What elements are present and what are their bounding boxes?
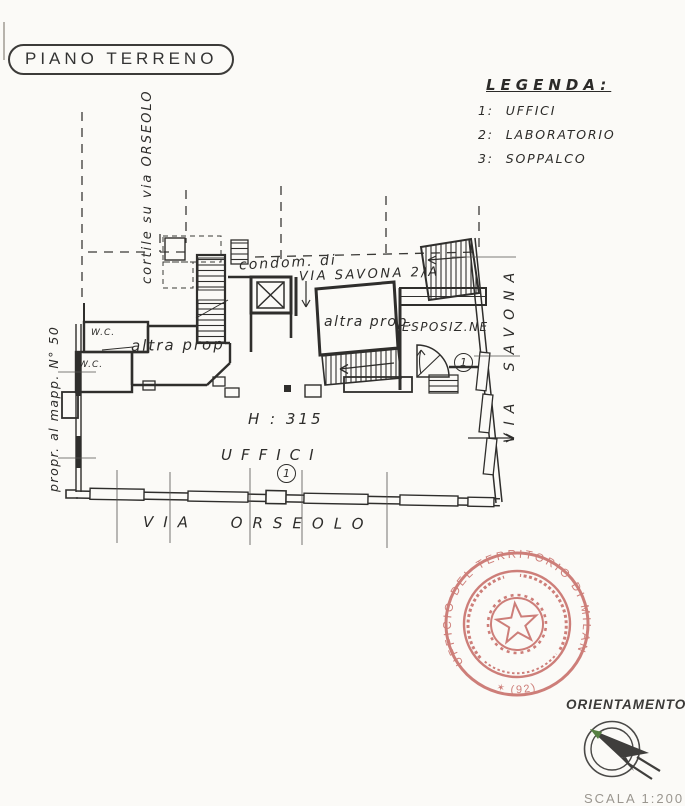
compass-icon (585, 722, 661, 780)
offices-number-badge: 1 (277, 464, 296, 483)
legend-item-label: LABORATORIO (506, 127, 616, 142)
legend-item-label: UFFICI (506, 103, 556, 118)
label-other-property-right: altra prop. (324, 314, 414, 330)
legend: LEGENDA: 1: UFFICI 2: LABORATORIO 3: SOP… (478, 76, 616, 166)
label-showroom: ESPOSIZ.NE (402, 320, 489, 334)
legend-item: 1: UFFICI (478, 103, 616, 118)
legend-item-num: 2: (478, 127, 494, 142)
elevator-symbol (251, 277, 291, 313)
legend-item: 3: SOPPALCO (478, 151, 616, 166)
label-street-bottom: VIA ORSEOLO (143, 513, 374, 533)
scale-note: SCALA 1:200 (584, 791, 684, 806)
legend-item-num: 1: (478, 103, 494, 118)
label-neighbor-parcel: propr. al mapp. N° 50 (46, 326, 61, 492)
territory-office-stamp: UFFICIO DEL TERRITORIO DI MILANO ✶ (92) (434, 541, 599, 703)
legend-item-label: SOPPALCO (506, 151, 587, 166)
label-ceiling-height: H : 315 (248, 410, 324, 428)
stamp-code: (92) (509, 681, 539, 697)
label-street-right: VIA SAVONA (502, 265, 518, 443)
legend-item-num: 3: (478, 151, 494, 166)
label-wc-upper: W.C. (91, 328, 115, 338)
showroom-number-badge: 1 (454, 353, 473, 372)
label-offices: UFFICI (221, 446, 323, 464)
page-title: PIANO TERRENO (8, 44, 234, 75)
label-other-property-left: altra prop (131, 335, 225, 355)
legend-title: LEGENDA: (486, 76, 616, 94)
orientation-label: ORIENTAMENTO (566, 697, 685, 712)
legend-item: 2: LABORATORIO (478, 127, 616, 142)
label-wc-lower: W.C. (79, 360, 103, 370)
label-courtyard: cortile su via ORSEOLO (140, 90, 155, 284)
